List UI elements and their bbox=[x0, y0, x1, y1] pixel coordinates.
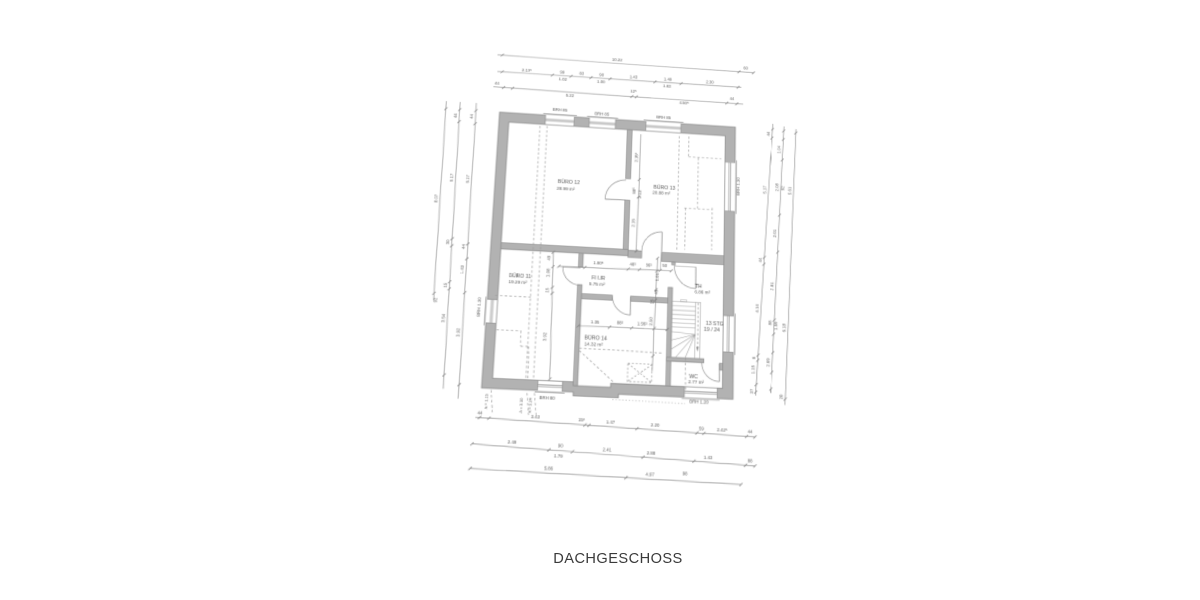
svg-text:8.07: 8.07 bbox=[433, 194, 439, 203]
svg-text:10.22: 10.22 bbox=[612, 57, 623, 62]
svg-text:2.30: 2.30 bbox=[706, 79, 715, 84]
svg-text:2.77 m²: 2.77 m² bbox=[688, 379, 704, 385]
svg-text:50: 50 bbox=[662, 263, 668, 268]
svg-text:1.43: 1.43 bbox=[459, 264, 465, 274]
svg-text:1.04: 1.04 bbox=[776, 145, 781, 154]
svg-text:2.88: 2.88 bbox=[647, 450, 657, 456]
svg-text:5.17: 5.17 bbox=[762, 185, 767, 194]
svg-text:15: 15 bbox=[442, 282, 448, 288]
svg-text:2.425: 2.425 bbox=[717, 427, 728, 433]
svg-text:5.86: 5.86 bbox=[544, 465, 554, 471]
svg-text:125: 125 bbox=[630, 89, 637, 94]
svg-text:1.01: 1.01 bbox=[654, 272, 659, 281]
svg-text:44: 44 bbox=[495, 80, 501, 85]
svg-text:44: 44 bbox=[748, 429, 754, 435]
svg-text:20.88 m²: 20.88 m² bbox=[652, 190, 670, 196]
svg-text:BRH 85: BRH 85 bbox=[595, 111, 610, 117]
svg-text:5.75 m²: 5.75 m² bbox=[589, 281, 605, 287]
svg-text:1.00: 1.00 bbox=[597, 79, 606, 84]
svg-text:2.15²: 2.15² bbox=[634, 152, 639, 162]
svg-text:15: 15 bbox=[544, 287, 550, 293]
svg-text:885: 885 bbox=[631, 187, 636, 194]
svg-text:485: 485 bbox=[630, 262, 637, 268]
svg-text:2.20: 2.20 bbox=[651, 422, 660, 428]
svg-text:6.86 m²: 6.86 m² bbox=[695, 289, 711, 295]
svg-text:2.50: 2.50 bbox=[648, 316, 653, 326]
svg-text:44: 44 bbox=[758, 257, 763, 263]
svg-text:885: 885 bbox=[617, 320, 624, 326]
svg-text:15³: 15³ bbox=[578, 417, 585, 423]
svg-text:1.15: 1.15 bbox=[750, 364, 755, 374]
svg-text:59: 59 bbox=[699, 425, 705, 431]
svg-text:83: 83 bbox=[579, 71, 584, 76]
svg-text:1.49: 1.49 bbox=[664, 77, 673, 82]
svg-text:BRH 1.30: BRH 1.30 bbox=[475, 296, 482, 316]
svg-text:90: 90 bbox=[558, 443, 564, 449]
svg-text:1.47: 1.47 bbox=[606, 419, 616, 425]
svg-text:2.15: 2.15 bbox=[630, 218, 635, 227]
svg-text:37: 37 bbox=[749, 388, 754, 394]
svg-text:14.32 m²: 14.32 m² bbox=[584, 341, 603, 347]
svg-text:A = 3.10: A = 3.10 bbox=[519, 398, 524, 413]
svg-text:2.69: 2.69 bbox=[765, 357, 770, 367]
svg-text:98: 98 bbox=[682, 470, 688, 476]
svg-text:2.41: 2.41 bbox=[603, 446, 613, 452]
svg-text:A = 1.15: A = 1.15 bbox=[484, 394, 489, 409]
svg-text:1.79: 1.79 bbox=[554, 453, 564, 459]
svg-text:28.99 m²: 28.99 m² bbox=[557, 185, 576, 191]
svg-text:1.08: 1.08 bbox=[545, 268, 551, 277]
svg-text:44: 44 bbox=[477, 410, 483, 416]
svg-text:30: 30 bbox=[445, 239, 451, 245]
svg-text:4.14: 4.14 bbox=[754, 303, 759, 312]
svg-text:BRH 1.20: BRH 1.20 bbox=[690, 399, 710, 405]
svg-text:49: 49 bbox=[653, 289, 658, 295]
svg-text:1.43: 1.43 bbox=[704, 454, 713, 460]
svg-text:1.905: 1.905 bbox=[593, 260, 604, 266]
svg-text:5.17: 5.17 bbox=[465, 174, 471, 183]
svg-text:3.54: 3.54 bbox=[440, 313, 446, 323]
svg-text:2.08: 2.08 bbox=[774, 183, 779, 192]
svg-text:2.175: 2.175 bbox=[522, 67, 532, 72]
svg-text:4.97: 4.97 bbox=[646, 471, 656, 477]
svg-text:BRH 80: BRH 80 bbox=[539, 395, 556, 401]
svg-text:A = 3.24: A = 3.24 bbox=[528, 398, 533, 413]
svg-text:6.18: 6.18 bbox=[781, 323, 786, 332]
svg-text:BRH 1.30: BRH 1.30 bbox=[735, 177, 740, 196]
svg-text:2.13: 2.13 bbox=[637, 189, 642, 198]
svg-text:49: 49 bbox=[546, 255, 552, 261]
svg-text:5.22: 5.22 bbox=[566, 93, 575, 98]
svg-text:BRH 85: BRH 85 bbox=[553, 107, 569, 113]
svg-text:1.35: 1.35 bbox=[591, 319, 600, 325]
svg-text:99: 99 bbox=[560, 70, 566, 75]
svg-text:44: 44 bbox=[730, 96, 735, 101]
svg-text:44: 44 bbox=[766, 131, 771, 136]
svg-text:92: 92 bbox=[432, 297, 438, 303]
svg-text:1.43: 1.43 bbox=[629, 74, 638, 79]
svg-text:88: 88 bbox=[767, 320, 772, 326]
svg-text:19.29 m²: 19.29 m² bbox=[508, 279, 527, 285]
svg-text:2.01: 2.01 bbox=[772, 229, 777, 238]
svg-text:8: 8 bbox=[751, 356, 756, 359]
svg-text:1.02: 1.02 bbox=[559, 76, 568, 81]
svg-text:5.17: 5.17 bbox=[449, 173, 455, 182]
svg-text:60: 60 bbox=[744, 65, 749, 70]
svg-text:2.81: 2.81 bbox=[769, 281, 774, 290]
svg-text:92: 92 bbox=[780, 185, 785, 191]
svg-text:5.61: 5.61 bbox=[787, 186, 792, 195]
svg-text:3.92: 3.92 bbox=[455, 327, 461, 337]
svg-text:865: 865 bbox=[646, 262, 653, 268]
svg-text:2.49: 2.49 bbox=[507, 439, 517, 445]
svg-text:1.59: 1.59 bbox=[773, 321, 778, 330]
svg-text:3.43: 3.43 bbox=[531, 414, 541, 420]
svg-text:3.92: 3.92 bbox=[542, 331, 548, 341]
svg-text:90: 90 bbox=[599, 72, 604, 77]
svg-text:44: 44 bbox=[469, 113, 474, 119]
svg-text:88: 88 bbox=[748, 458, 754, 464]
svg-text:1.63: 1.63 bbox=[663, 83, 672, 88]
svg-text:20: 20 bbox=[778, 394, 783, 400]
svg-text:19 / 24: 19 / 24 bbox=[704, 327, 720, 334]
svg-text:44: 44 bbox=[453, 113, 459, 119]
svg-text:BRH 85: BRH 85 bbox=[656, 114, 671, 120]
svg-text:44: 44 bbox=[461, 243, 467, 249]
svg-text:1.555: 1.555 bbox=[637, 321, 648, 327]
svg-text:4.505: 4.505 bbox=[679, 100, 689, 105]
